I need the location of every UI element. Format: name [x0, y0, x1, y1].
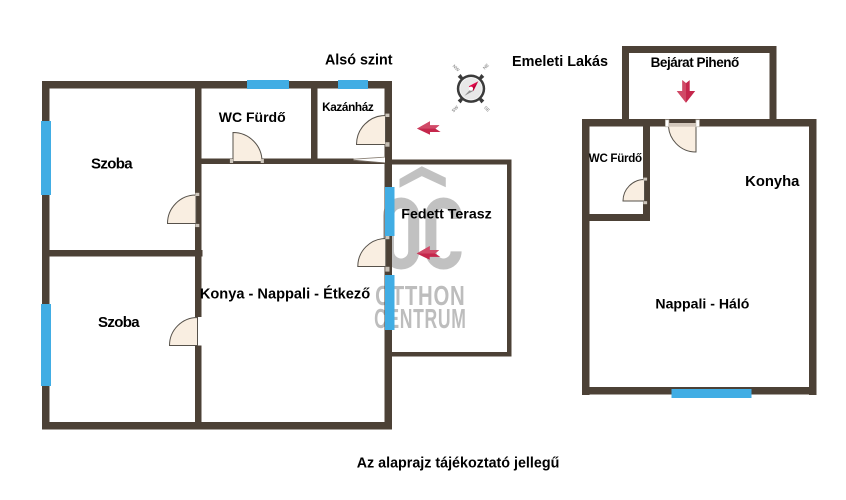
svg-text:Emeleti Lakás: Emeleti Lakás: [512, 54, 608, 70]
svg-text:Szoba: Szoba: [91, 155, 133, 172]
svg-text:Alsó szint: Alsó szint: [325, 52, 393, 68]
svg-text:Fedett Terasz: Fedett Terasz: [401, 206, 491, 222]
svg-text:Szoba: Szoba: [98, 314, 140, 331]
svg-text:Bejárat Pihenő: Bejárat Pihenő: [651, 55, 739, 70]
svg-text:Konyha: Konyha: [745, 174, 800, 190]
svg-text:WC Fürdő: WC Fürdő: [219, 109, 286, 125]
svg-text:Nappali - Háló: Nappali - Háló: [655, 296, 749, 312]
svg-text:Konya - Nappali - Étkező: Konya - Nappali - Étkező: [200, 286, 370, 303]
svg-text:Az alaprajz tájékoztató jelleg: Az alaprajz tájékoztató jellegű: [357, 456, 560, 472]
svg-text:Kazánház: Kazánház: [322, 100, 374, 114]
svg-text:WC Fürdő: WC Fürdő: [589, 152, 642, 165]
